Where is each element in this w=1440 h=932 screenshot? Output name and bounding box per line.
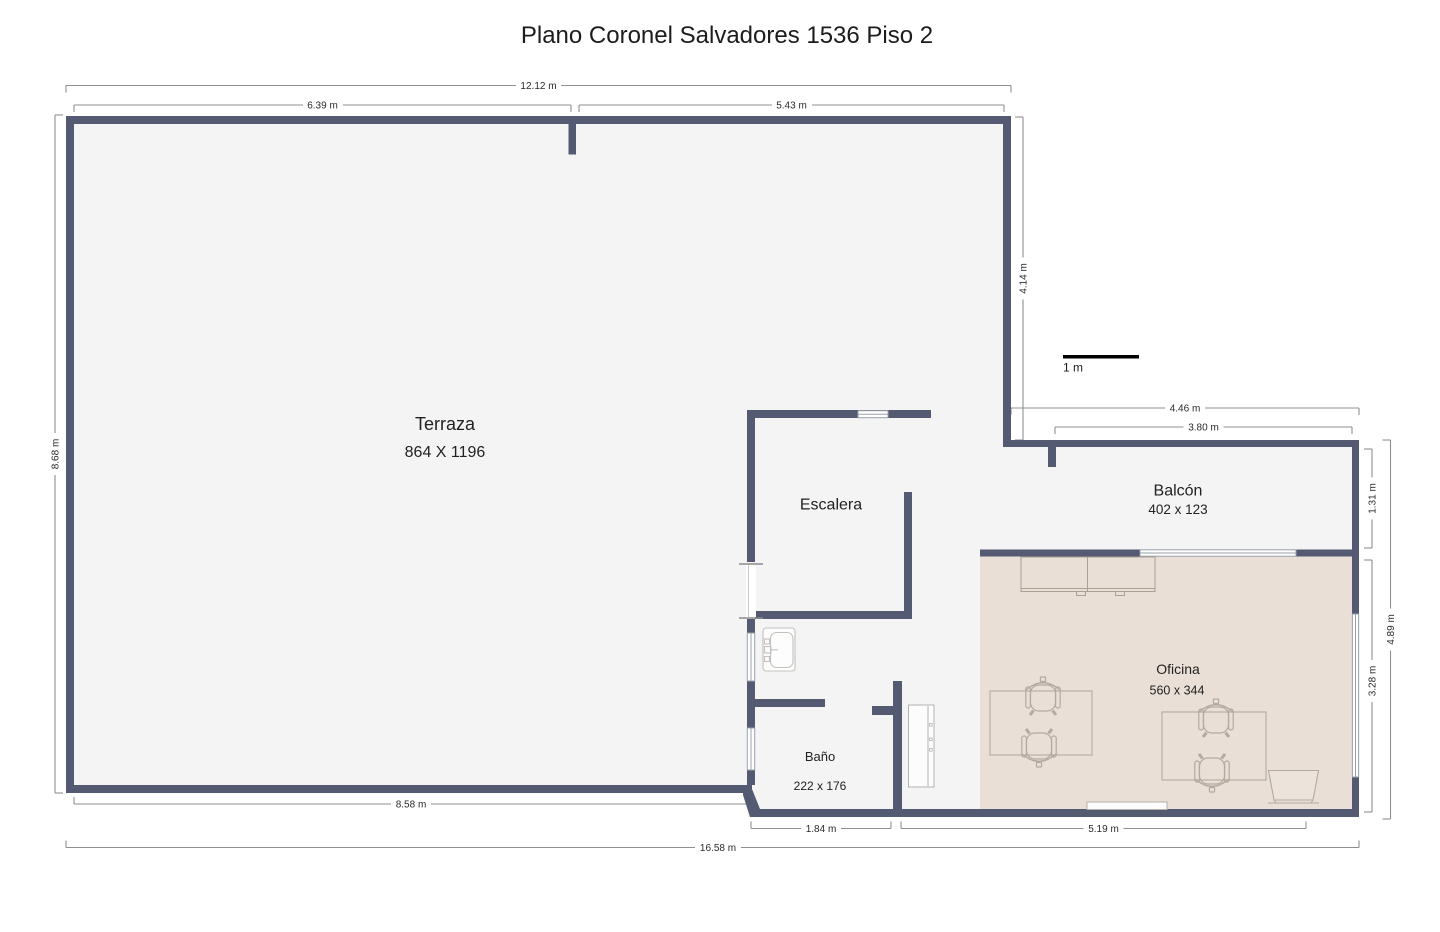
svg-text:1.31 m: 1.31 m [1368, 483, 1379, 514]
svg-text:864 X 1196: 864 X 1196 [405, 444, 486, 461]
svg-text:402 x 123: 402 x 123 [1148, 502, 1207, 517]
svg-text:16.58 m: 16.58 m [700, 843, 736, 854]
svg-text:Baño: Baño [805, 749, 835, 764]
svg-text:3.28 m: 3.28 m [1368, 666, 1379, 697]
svg-text:6.39 m: 6.39 m [307, 101, 338, 112]
svg-text:5.43 m: 5.43 m [776, 101, 807, 112]
svg-text:560 x 344: 560 x 344 [1150, 684, 1205, 698]
svg-text:8.68 m: 8.68 m [51, 439, 62, 470]
svg-text:1 m: 1 m [1063, 361, 1083, 375]
svg-text:Oficina: Oficina [1156, 661, 1200, 677]
svg-text:3.80 m: 3.80 m [1188, 423, 1219, 434]
svg-text:Escalera: Escalera [800, 497, 862, 514]
svg-text:222 x 176: 222 x 176 [794, 779, 847, 793]
svg-text:5.19 m: 5.19 m [1088, 824, 1119, 835]
svg-text:8.58 m: 8.58 m [396, 800, 427, 811]
svg-text:Plano Coronel Salvadores 1536: Plano Coronel Salvadores 1536 Piso 2 [521, 22, 933, 49]
svg-text:Balcón: Balcón [1154, 483, 1203, 500]
svg-text:12.12 m: 12.12 m [520, 81, 556, 92]
svg-text:4.89 m: 4.89 m [1386, 614, 1397, 645]
svg-text:4.46 m: 4.46 m [1170, 404, 1201, 415]
svg-text:4.14 m: 4.14 m [1019, 263, 1030, 294]
svg-text:Terraza: Terraza [415, 414, 476, 434]
svg-text:1.84 m: 1.84 m [806, 824, 837, 835]
